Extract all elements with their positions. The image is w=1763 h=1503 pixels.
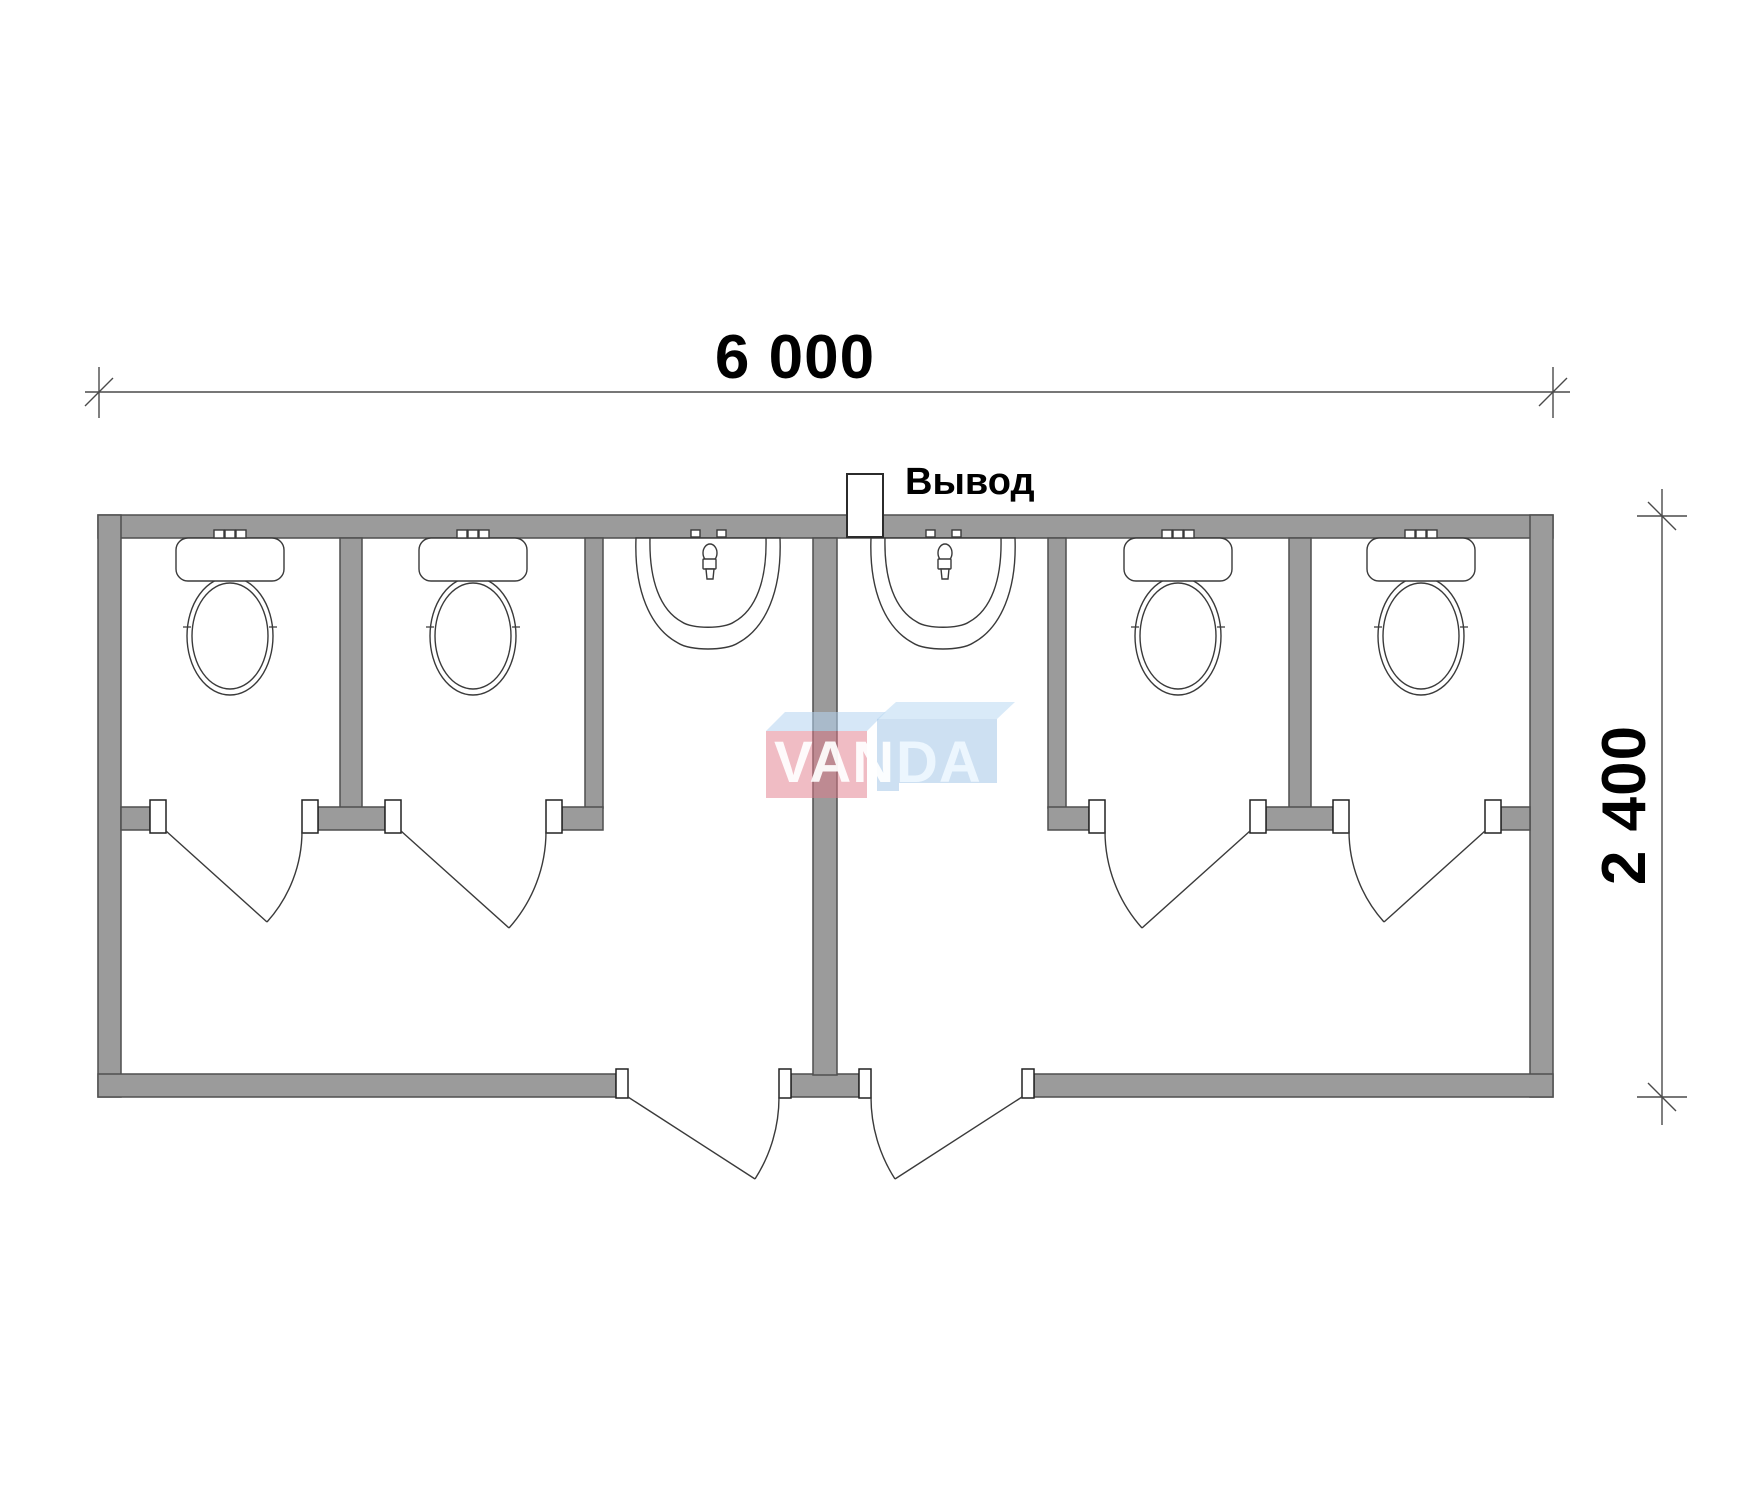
sink-fixture <box>636 530 780 649</box>
watermark-blue-top-face <box>877 702 1015 719</box>
toilet-flush-button <box>236 530 246 538</box>
jamb <box>1333 800 1349 833</box>
wall-stub-exterior-left <box>121 807 150 830</box>
wall-top <box>98 515 1553 538</box>
partition-stall1-stall2 <box>340 538 362 808</box>
sink-fixture <box>871 530 1015 649</box>
toilet-flush-button <box>479 530 489 538</box>
jamb <box>616 1069 628 1098</box>
faucet-body <box>703 559 716 569</box>
jamb <box>1022 1069 1034 1098</box>
wall-bottom-center-tee <box>791 1074 859 1097</box>
partition-tee-right <box>1266 807 1333 830</box>
toilet-fixture <box>419 530 527 695</box>
jamb <box>1250 800 1266 833</box>
sink-wall-fitting <box>717 530 726 537</box>
toilet-flush-button <box>225 530 235 538</box>
toilet-tank <box>176 538 284 581</box>
watermark-pink-top-face <box>766 712 886 731</box>
outlet-label: Вывод <box>905 463 1035 501</box>
wall-right <box>1530 515 1553 1097</box>
entrance-right-door-swing <box>871 1097 1022 1179</box>
stall1-door-swing <box>166 831 302 922</box>
wall-bottom-left-segment <box>98 1074 616 1097</box>
floor-plan-canvas: 6 000 2 400 Вывод VAN DA <box>0 0 1763 1503</box>
jamb <box>859 1069 871 1098</box>
sink-wall-fitting <box>952 530 961 537</box>
toilet-flush-button <box>1416 530 1426 538</box>
faucet-spout <box>941 569 949 579</box>
jamb <box>150 800 166 833</box>
faucet-body <box>938 559 951 569</box>
watermark-text-left: VAN <box>774 734 895 792</box>
stall3-door-swing <box>1105 831 1250 928</box>
jamb <box>385 800 401 833</box>
entrance-left-door-swing <box>628 1097 779 1179</box>
toilet-flush-button <box>1427 530 1437 538</box>
outlet-box <box>847 474 883 537</box>
wall-left <box>98 515 121 1097</box>
toilet-flush-button <box>1162 530 1172 538</box>
toilet-bowl-inner <box>192 583 268 689</box>
sink-wall-fitting <box>691 530 700 537</box>
toilet-flush-button <box>214 530 224 538</box>
toilet-fixture <box>1367 530 1475 695</box>
stall4-door-swing <box>1349 831 1485 922</box>
wall-stub-washroom-left <box>562 807 603 830</box>
toilet-fixture <box>176 530 284 695</box>
wall-stub-washroom-right <box>1048 807 1089 830</box>
partition-stall3-stall4 <box>1289 538 1311 808</box>
jamb <box>302 800 318 833</box>
wall-stub-exterior-right <box>1501 807 1530 830</box>
wall-central <box>813 538 837 1075</box>
jamb <box>546 800 562 833</box>
toilet-tank <box>1124 538 1232 581</box>
outlet-box-group <box>847 474 883 537</box>
faucet-spout <box>706 569 714 579</box>
dimension-height-label: 2 400 <box>1594 725 1656 885</box>
watermark-text-right: DA <box>896 734 982 792</box>
toilet-bowl-inner <box>435 583 511 689</box>
partition-stall2-washroom <box>585 538 603 808</box>
wall-bottom-right-segment <box>1034 1074 1553 1097</box>
toilet-bowl-inner <box>1140 583 1216 689</box>
partition-washroom-stall3 <box>1048 538 1066 808</box>
jamb <box>1485 800 1501 833</box>
toilet-tank <box>1367 538 1475 581</box>
toilet-flush-button <box>1184 530 1194 538</box>
toilet-tank <box>419 538 527 581</box>
stall2-door-swing <box>401 831 546 928</box>
sink-wall-fitting <box>926 530 935 537</box>
toilet-flush-button <box>1173 530 1183 538</box>
toilet-flush-button <box>468 530 478 538</box>
jamb <box>779 1069 791 1098</box>
toilet-flush-button <box>457 530 467 538</box>
toilet-bowl-inner <box>1383 583 1459 689</box>
toilet-fixture <box>1124 530 1232 695</box>
jamb <box>1089 800 1105 833</box>
toilet-flush-button <box>1405 530 1415 538</box>
dimension-width-label: 6 000 <box>595 327 995 389</box>
partition-tee-left <box>318 807 385 830</box>
